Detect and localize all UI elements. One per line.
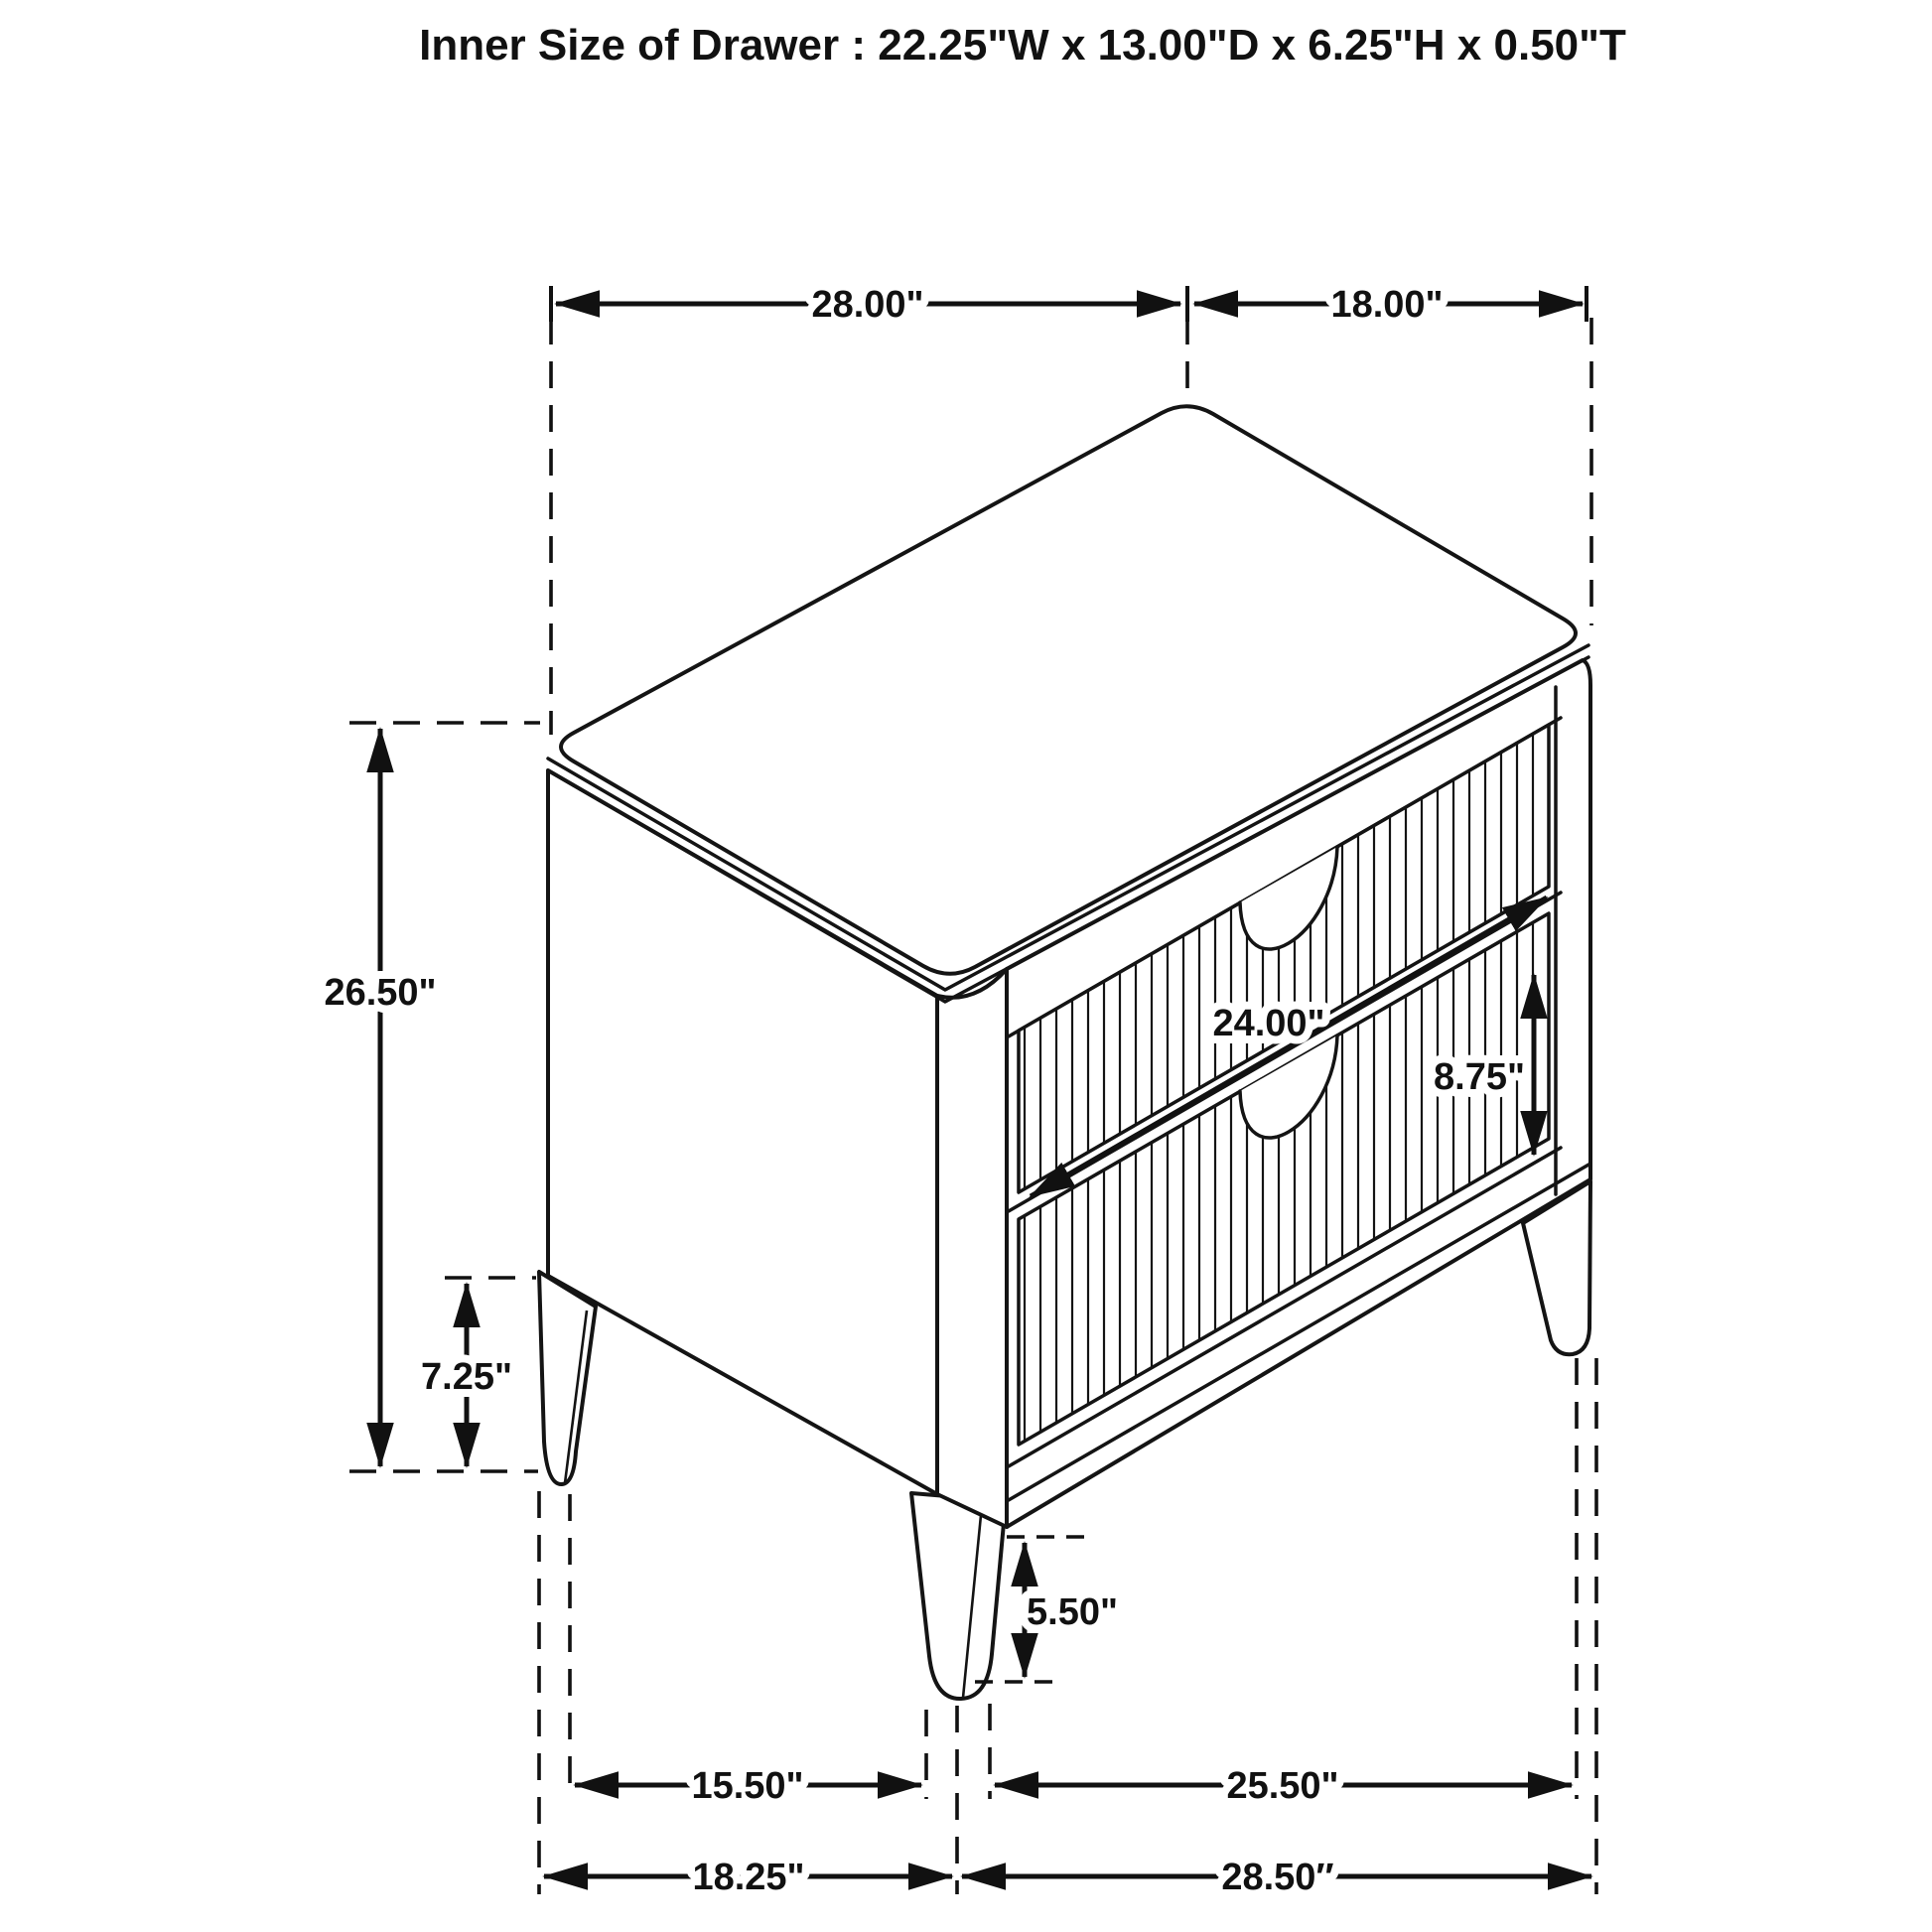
dim-label-front-leg-height: 5.50" — [1027, 1591, 1118, 1633]
front-left-corner-post — [937, 969, 1007, 1527]
dimension-leg-span-front: 25.50" — [995, 1765, 1572, 1807]
dimension-front-leg-height: 5.50" — [1025, 1543, 1118, 1677]
nightstand-dimension-drawing: 28.00" 18.00" 26.50" 7.25" 24.00" 8.75" — [0, 0, 1932, 1932]
dimension-overall-height: 26.50" — [324, 729, 436, 1466]
dim-label-drawer-width: 24.00" — [1212, 1003, 1324, 1044]
dim-label-top-width: 28.00" — [811, 284, 923, 326]
dim-label-leg-height: 7.25" — [421, 1356, 512, 1398]
dimension-leg-height: 7.25" — [421, 1284, 512, 1466]
dim-label-top-depth: 18.00" — [1330, 284, 1443, 326]
dimension-diagram-page: 28.00" 18.00" 26.50" 7.25" 24.00" 8.75" — [0, 0, 1932, 1932]
dim-label-leg-span-front: 25.50" — [1226, 1765, 1338, 1807]
dim-label-footprint-width: 28.50″ — [1221, 1857, 1333, 1898]
nightstand-illustration — [539, 406, 1590, 1699]
dimension-leg-span-side: 15.50" — [575, 1765, 921, 1807]
rear-left-leg — [539, 1272, 596, 1484]
dim-label-leg-span-side: 15.50" — [691, 1765, 803, 1807]
dim-label-overall-height: 26.50" — [324, 972, 436, 1014]
dim-label-drawer-front-height: 8.75" — [1434, 1056, 1525, 1098]
dimension-footprint-width: 28.50″ — [962, 1857, 1591, 1898]
diagram-title: Inner Size of Drawer : 22.25"W x 13.00"D… — [419, 21, 1626, 69]
dimension-top-depth: 18.00" — [1194, 284, 1583, 326]
dim-label-footprint-depth: 18.25" — [692, 1857, 804, 1898]
front-left-leg — [911, 1493, 1006, 1699]
dimension-footprint-depth: 18.25" — [544, 1857, 952, 1898]
dimension-top-width: 28.00" — [556, 284, 1180, 326]
